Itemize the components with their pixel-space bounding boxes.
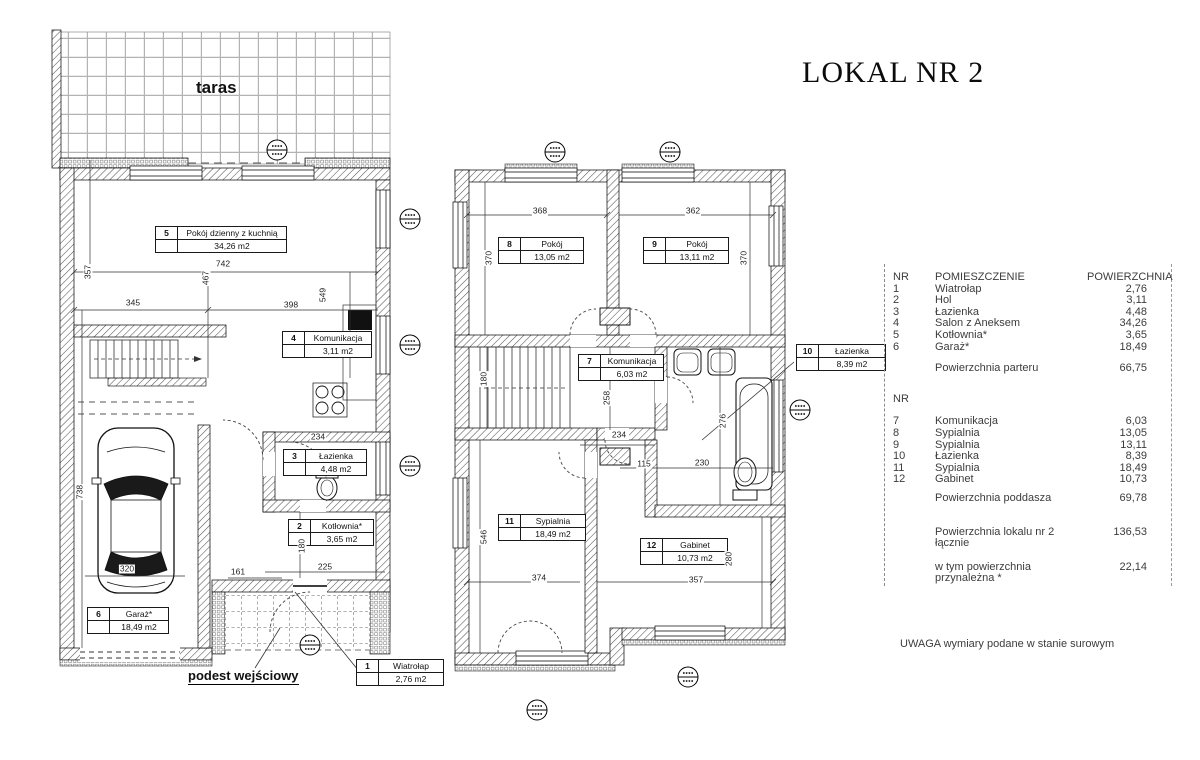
col-room: POMIESZCZENIE [935,272,1087,284]
room-label-9: 9Pokój13,11 m2 [643,237,729,264]
col-nr: NR [889,272,935,284]
included-area-row: w tym powierzchnia przynależna * 22,14 [889,562,1171,585]
included-area-value: 22,14 [1087,562,1171,585]
upper-floor-plan [450,140,870,740]
lokal-total-value: 136,53 [1087,527,1171,550]
room-area: 6,03 m2 [601,368,663,380]
room-name: Pokój dzienny z kuchnią [178,227,286,240]
dimension-label: 742 [215,260,231,269]
dimension-label: 280 [725,551,734,567]
dimension-label: 180 [480,371,489,387]
col-nr-2: NR [889,394,935,406]
room-name: Pokój [521,238,583,251]
room-name: Łazienka [306,450,366,463]
room-area: 13,05 m2 [521,251,583,263]
room-label-6: 6Garaż*18,49 m2 [87,607,169,634]
upper-header: NR [889,394,1171,406]
room-label-10: 10Łazienka8,39 m2 [796,344,886,371]
room-area: 4,48 m2 [306,463,366,475]
table-row: 8Sypialnia13,05 [889,428,1171,440]
area-table: NR POMIESZCZENIE POWIERZCHNIA 1Wiatrołap… [884,264,1172,586]
room-number: 10 [797,345,819,358]
dimension-label: 398 [283,301,299,310]
window-marker-icon [658,140,682,164]
room-label-1: 1Wiatrołap2,76 m2 [356,659,444,686]
room-area: 8,39 m2 [819,358,885,370]
dimension-label: 320 [119,565,135,574]
col-area: POWIERZCHNIA [1087,272,1171,284]
room-name: Kotłownia* [311,520,373,533]
room-label-3: 3Łazienka4,48 m2 [283,449,367,476]
ground-total-value: 66,75 [1087,363,1171,375]
lokal-total-row: Powierzchnia lokalu nr 2 łącznie 136,53 [889,527,1171,550]
room-area: 3,11 m2 [305,345,371,357]
room-label-11: 11Sypialnia18,49 m2 [498,514,586,541]
room-number: 11 [499,515,521,528]
room-area: 34,26 m2 [178,240,286,252]
dimension-label: 362 [685,207,701,216]
dimension-label: 115 [636,460,652,469]
window-marker-icon [398,207,422,231]
floor-plan-sheet: 5Pokój dzienny z kuchnią34,26 m24Komunik… [0,0,1200,760]
upper-floor-rows: 7Komunikacja6,038Sypialnia13,059Sypialni… [889,416,1171,486]
room-name: Sypialnia [521,515,585,528]
dimension-label: 370 [485,250,494,266]
room-area: 13,11 m2 [666,251,728,263]
upper-total-value: 69,78 [1087,493,1171,505]
dimension-label: 546 [480,529,489,545]
dimension-label: 738 [76,484,85,500]
upper-total-label: Powierzchnia poddasza [935,493,1087,505]
lokal-total-label: Powierzchnia lokalu nr 2 łącznie [935,527,1087,550]
room-area: 3,65 m2 [311,533,373,545]
page-title: LOKAL NR 2 [802,56,984,90]
room-number: 6 [88,608,110,621]
room-number: 8 [499,238,521,251]
dimension-label: 276 [719,413,728,429]
room-area: 18,49 m2 [110,621,168,633]
room-area: 10,73 m2 [663,552,727,564]
room-name: Łazienka [819,345,885,358]
window-marker-icon [398,333,422,357]
room-name: Komunikacja [601,355,663,368]
dimension-label: 357 [688,576,704,585]
table-header: NR POMIESZCZENIE POWIERZCHNIA [889,272,1171,284]
window-marker-icon [298,633,322,657]
note-text: UWAGA wymiary podane w stanie surowym [900,638,1114,650]
room-name: Wiatrołap [379,660,443,673]
room-number: 2 [289,520,311,533]
room-area: 18,49 m2 [521,528,585,540]
window-marker-icon [525,698,549,722]
dimension-label: 549 [319,287,328,303]
room-label-8: 8Pokój13,05 m2 [498,237,584,264]
room-number: 7 [579,355,601,368]
room-number: 12 [641,539,663,552]
window-marker-icon [265,138,289,162]
room-number: 5 [156,227,178,240]
table-row: 6Garaż*18,49 [889,342,1171,354]
included-area-label: w tym powierzchnia przynależna * [935,562,1087,585]
ground-total-label: Powierzchnia parteru [935,363,1087,375]
dimension-label: 161 [230,568,246,577]
dimension-label: 234 [611,431,627,440]
dimension-label: 180 [298,538,307,554]
dimension-label: 234 [310,433,326,442]
room-number: 1 [357,660,379,673]
upper-total-row: Powierzchnia poddasza 69,78 [889,493,1171,505]
room-label-7: 7Komunikacja6,03 m2 [578,354,664,381]
ground-total-row: Powierzchnia parteru 66,75 [889,363,1171,375]
room-number: 3 [284,450,306,463]
room-name: Komunikacja [305,332,371,345]
dimension-label: 374 [531,574,547,583]
ground-floor-rows: 1Wiatrołap2,762Hol3,113Łazienka4,484Salo… [889,284,1171,354]
room-name: Garaż* [110,608,168,621]
dimension-label: 357 [84,264,93,280]
table-row: 12Gabinet10,73 [889,474,1171,486]
window-marker-icon [788,398,812,422]
dimension-label: 368 [532,207,548,216]
room-number: 4 [283,332,305,345]
dimension-label: 370 [740,250,749,266]
room-number: 9 [644,238,666,251]
window-marker-icon [543,140,567,164]
room-label-4: 4Komunikacja3,11 m2 [282,331,372,358]
table-row: 10Łazienka8,39 [889,451,1171,463]
room-area: 2,76 m2 [379,673,443,685]
entry-platform-label: podest wejściowy [188,668,299,685]
window-marker-icon [676,665,700,689]
dimension-label: 230 [694,459,710,468]
dimension-label: 467 [202,270,211,286]
room-label-5: 5Pokój dzienny z kuchnią34,26 m2 [155,226,287,253]
table-row: 5Kotłownia*3,65 [889,330,1171,342]
room-label-12: 12Gabinet10,73 m2 [640,538,728,565]
window-marker-icon [398,454,422,478]
room-name: Pokój [666,238,728,251]
dimension-label: 225 [317,563,333,572]
terrace-label: taras [196,78,237,98]
dimension-label: 258 [603,390,612,406]
room-name: Gabinet [663,539,727,552]
dimension-label: 345 [125,299,141,308]
